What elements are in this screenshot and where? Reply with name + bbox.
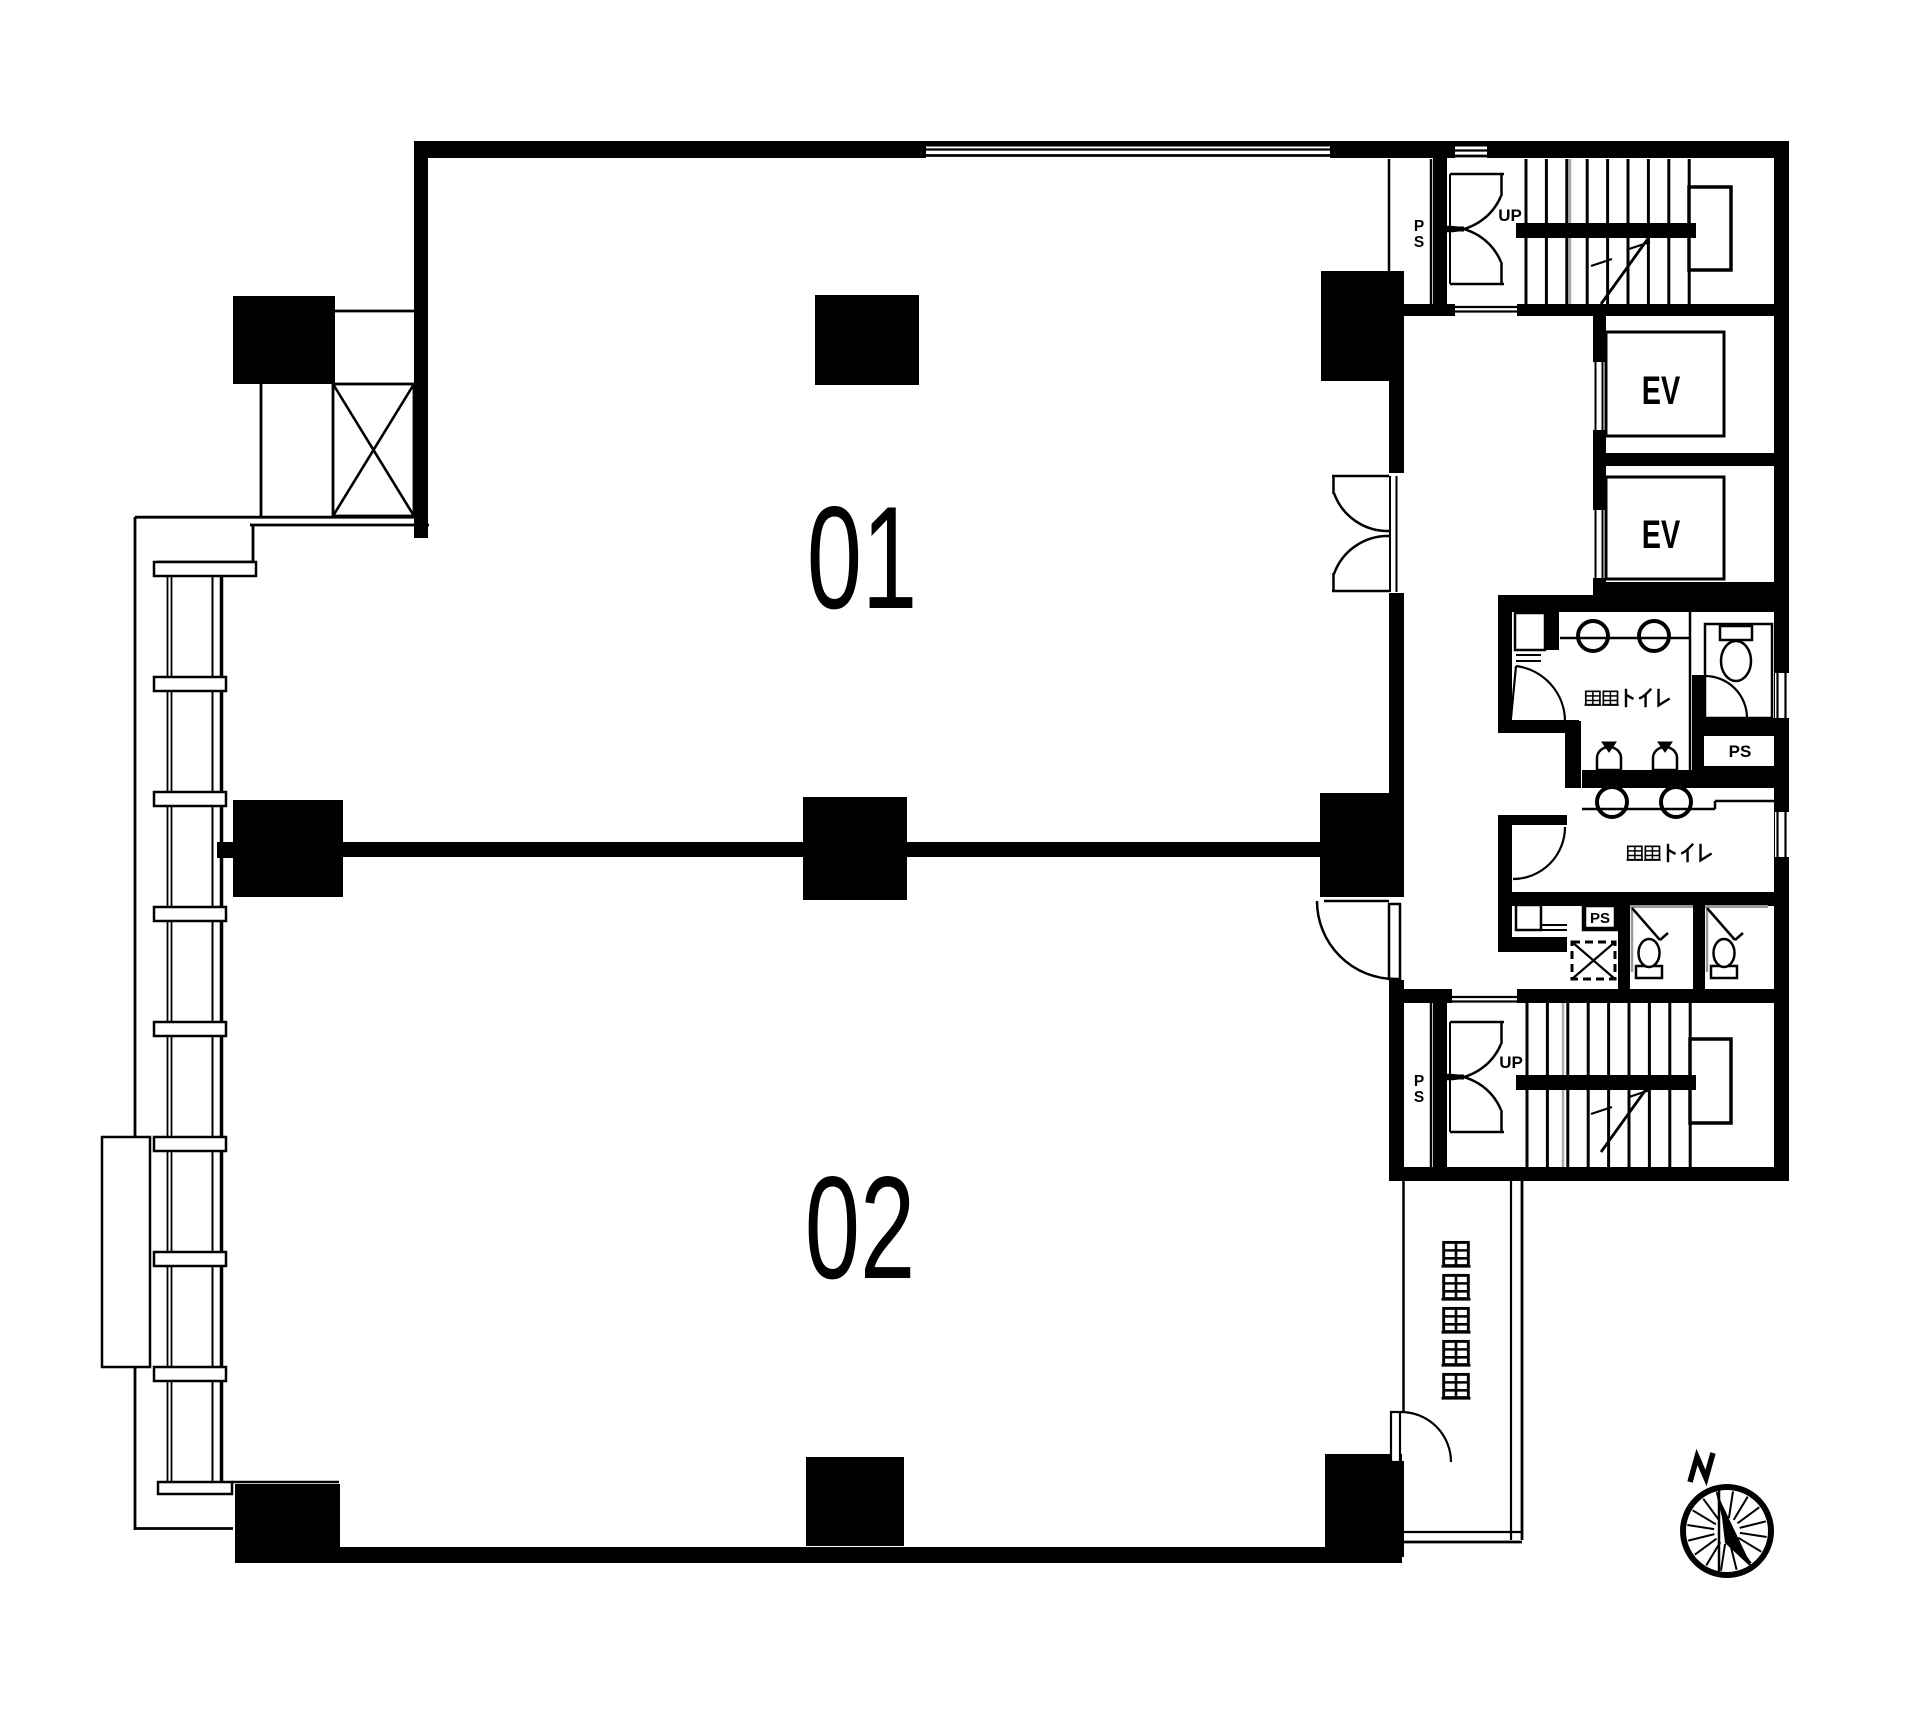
svg-text:S: S	[1414, 234, 1424, 251]
svg-text:EV: EV	[1642, 368, 1680, 413]
svg-text:UP: UP	[1498, 206, 1522, 225]
svg-text:P: P	[1414, 1073, 1424, 1090]
svg-text:EV: EV	[1642, 512, 1680, 557]
svg-text:PS: PS	[1729, 742, 1752, 761]
svg-text:01: 01	[807, 477, 917, 640]
svg-text:UP: UP	[1499, 1053, 1523, 1072]
svg-text:P: P	[1414, 218, 1424, 235]
svg-text:S: S	[1414, 1089, 1424, 1106]
svg-text:PS: PS	[1590, 910, 1610, 927]
svg-text:02: 02	[805, 1147, 915, 1310]
